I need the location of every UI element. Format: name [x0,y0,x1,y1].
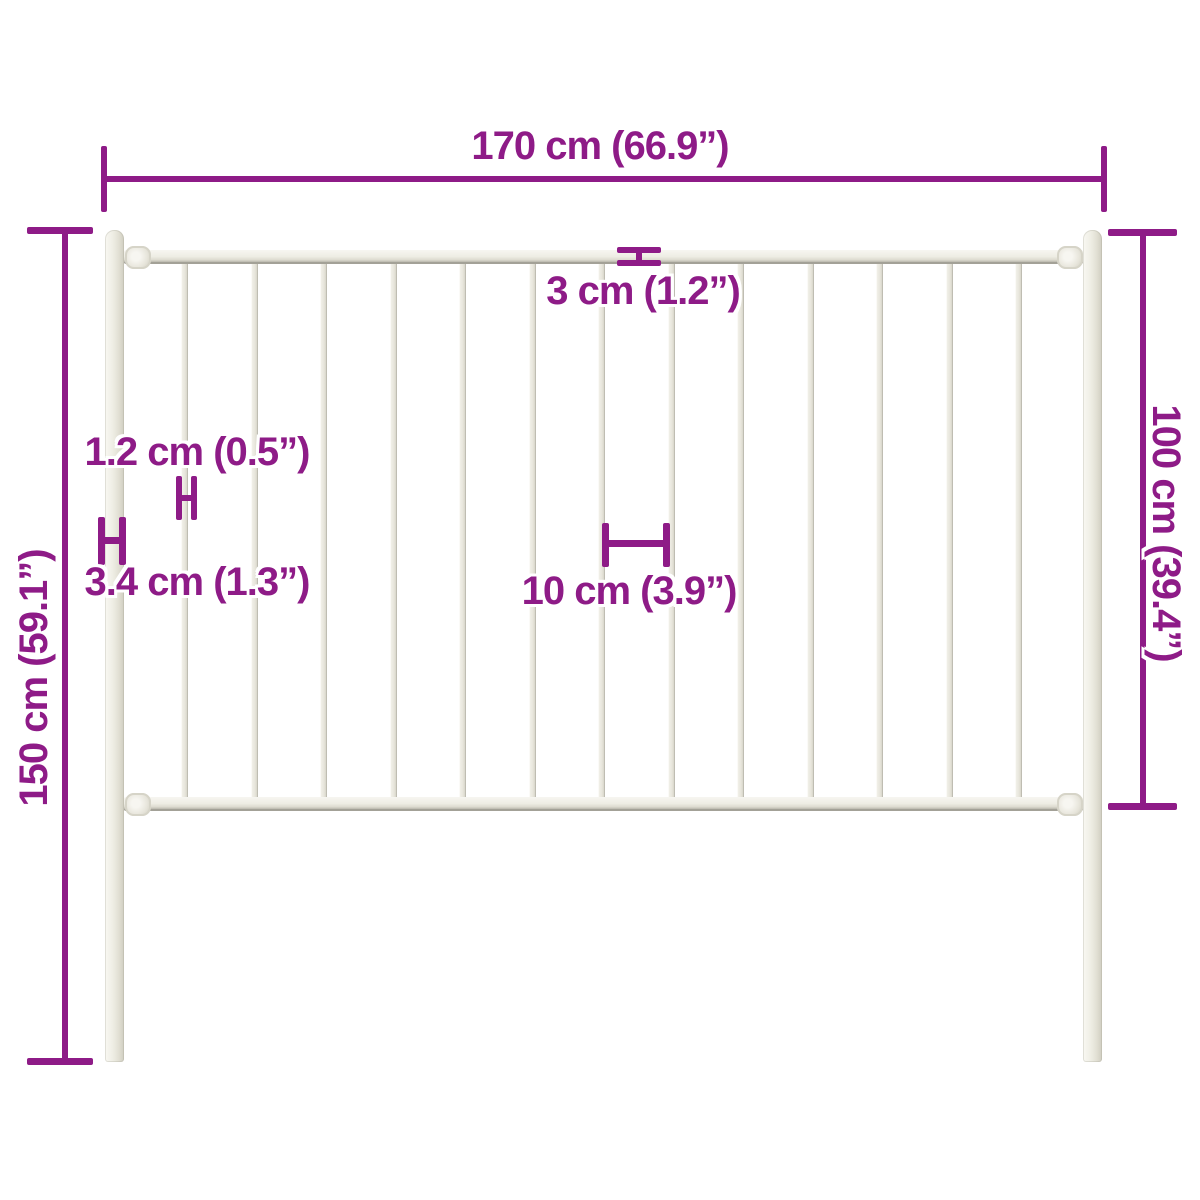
fence-bar [807,264,814,797]
dim-post-height-tick-top [27,227,93,234]
dim-total-width-tick-left [101,146,107,212]
dim-bar-spacing-line [602,540,670,547]
dim-post-height-label: 150 cm (59.1”) [14,549,54,806]
fence-bar [251,264,258,797]
rail-clamp-top-left [125,246,151,269]
dim-panel-height-tick-bottom [1108,803,1177,810]
fence-rail-bottom [124,797,1083,811]
dim-panel-height-tick-top [1108,229,1177,236]
fence-bar [181,264,188,797]
dim-panel-height-label: 100 cm (39.4”) [1146,404,1186,661]
fence-bar [529,264,536,797]
dim-total-width-tick-right [1101,146,1107,212]
dim-rail-thickness-line [636,247,642,266]
rail-clamp-bottom-left [125,793,151,816]
fence-dimension-diagram: 170 cm (66.9”) 150 cm (59.1”) 100 cm (39… [0,0,1200,1200]
dim-post-thickness-line [98,537,126,544]
rail-clamp-top-right [1057,246,1083,269]
fence-bar [876,264,883,797]
dim-post-height-tick-bottom [27,1058,93,1065]
fence-post-right [1083,230,1102,1062]
dim-post-height-line [62,230,68,1062]
dim-bar-spacing-label: 10 cm (3.9”) [522,571,737,611]
fence-bar [737,264,744,797]
dim-total-width-label: 170 cm (66.9”) [471,126,728,166]
fence-bar [946,264,953,797]
fence-bar [459,264,466,797]
fence-bar [390,264,397,797]
fence-post-left [105,230,124,1062]
fence-bar [320,264,327,797]
dim-rail-thickness-label: 3 cm (1.2”) [546,271,740,311]
dim-bar-thickness-label: 1.2 cm (0.5”) [85,432,310,472]
rail-clamp-bottom-right [1057,793,1083,816]
dim-total-width-line [105,176,1105,182]
dim-post-thickness-label: 3.4 cm (1.3”) [85,562,310,602]
fence-rail-top [124,250,1083,264]
dim-bar-thickness-line [176,495,197,501]
fence-bar [1015,264,1022,797]
